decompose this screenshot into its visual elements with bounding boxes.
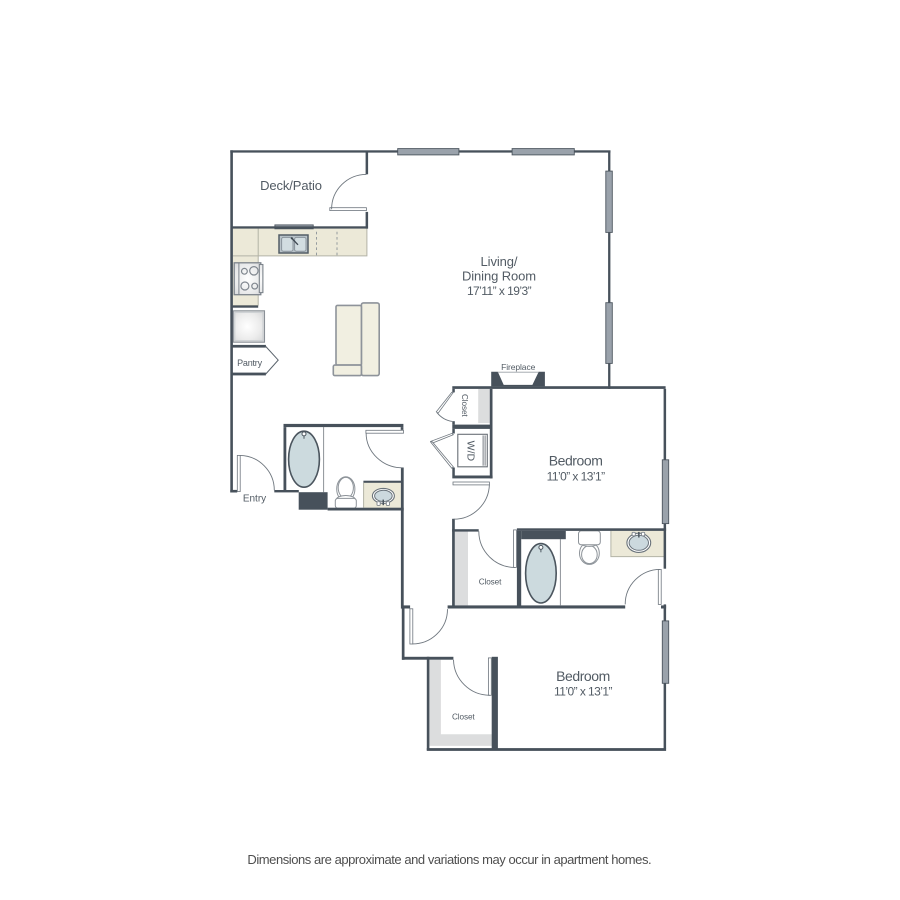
svg-text:W/D: W/D	[464, 441, 476, 462]
svg-text:Closet: Closet	[452, 712, 475, 721]
svg-text:Dimensions are approximate and: Dimensions are approximate and variation…	[247, 852, 651, 867]
svg-text:11’0” x 13’1”: 11’0” x 13’1”	[554, 684, 613, 698]
svg-text:11’0” x 13’1”: 11’0” x 13’1”	[547, 470, 606, 484]
svg-text:Deck/Patio: Deck/Patio	[260, 178, 322, 193]
svg-text:Bedroom: Bedroom	[556, 668, 610, 684]
svg-text:Bedroom: Bedroom	[549, 453, 603, 469]
svg-text:Living/: Living/	[481, 254, 518, 269]
svg-text:Fireplace: Fireplace	[501, 362, 535, 372]
svg-text:Dining Room: Dining Room	[462, 268, 536, 283]
svg-text:17’11” x 19’3”: 17’11” x 19’3”	[467, 284, 532, 298]
svg-text:Pantry: Pantry	[237, 358, 263, 368]
svg-text:Closet: Closet	[460, 394, 469, 417]
svg-text:Entry: Entry	[243, 493, 266, 504]
svg-text:Closet: Closet	[479, 577, 502, 586]
